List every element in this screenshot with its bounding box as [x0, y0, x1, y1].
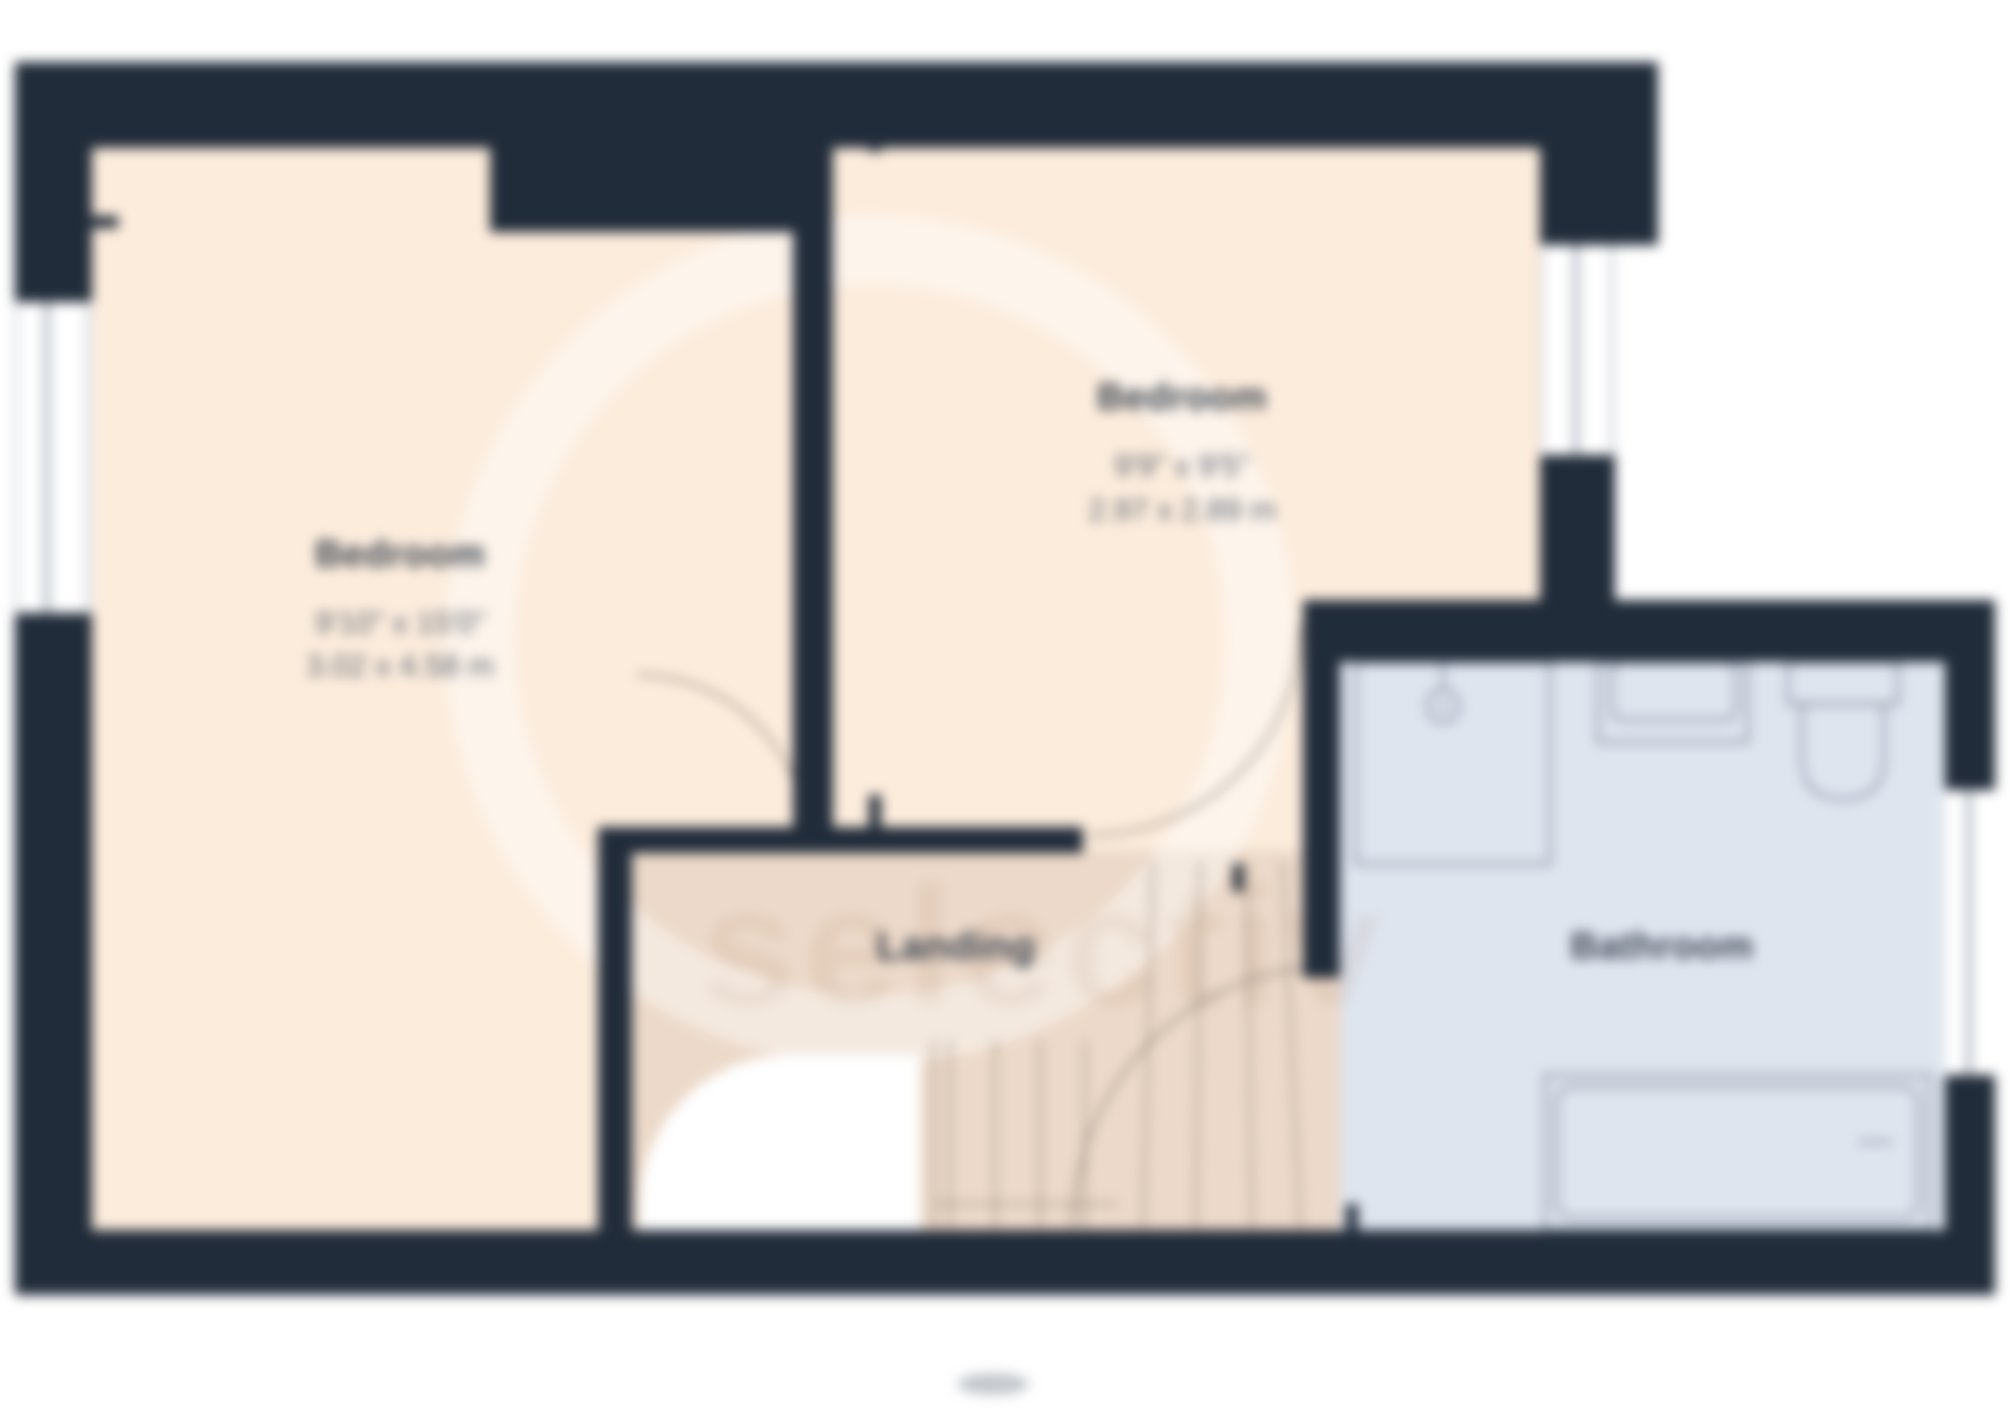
bedroom2-size-imperial: 9'9" x 9'5"	[1114, 448, 1250, 484]
floorplan-page: selectiv	[0, 0, 2011, 1423]
bedroom1-size-imperial: 9'10" x 15'0"	[315, 605, 485, 641]
landing-label: Landing	[876, 925, 1035, 970]
floorplan: selectiv	[0, 0, 2011, 1423]
bedroom1-size-metric: 3.02 x 4.58 m	[306, 648, 494, 684]
footer-mark	[957, 1373, 1029, 1395]
bathroom-label: Bathroom	[1570, 926, 1753, 969]
bedroom2-label: Bedroom	[1097, 377, 1267, 420]
floorplan-drawing: selectiv	[0, 0, 2011, 1423]
bathroom-window	[1945, 790, 1995, 1075]
left-window	[15, 302, 92, 613]
bedroom1-label: Bedroom	[315, 534, 485, 577]
bedroom2-size-metric: 2.97 x 2.89 m	[1088, 492, 1276, 528]
right-window	[1540, 245, 1615, 455]
